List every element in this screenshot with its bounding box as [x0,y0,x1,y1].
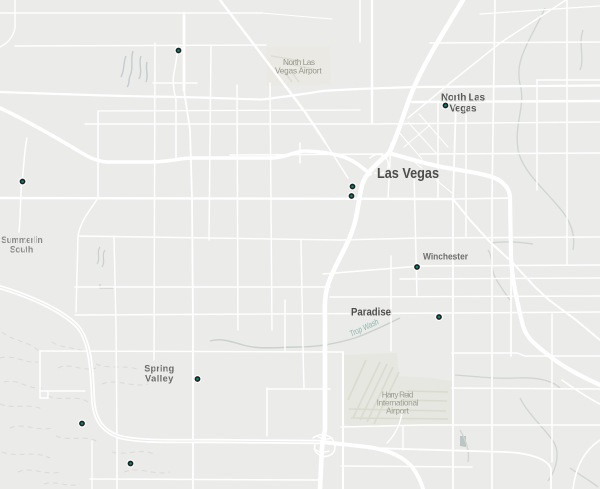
svg-text:Valley: Valley [145,373,174,384]
svg-text:North Las: North Las [441,93,485,104]
svg-text:Vegas Airport: Vegas Airport [275,67,322,76]
svg-text:Airport: Airport [386,407,410,416]
svg-text:South: South [10,245,33,255]
svg-text:Paradise: Paradise [351,306,391,318]
svg-text:Winchester: Winchester [423,250,468,261]
svg-text:Las Vegas: Las Vegas [377,166,439,182]
svg-text:Vegas: Vegas [450,104,477,115]
